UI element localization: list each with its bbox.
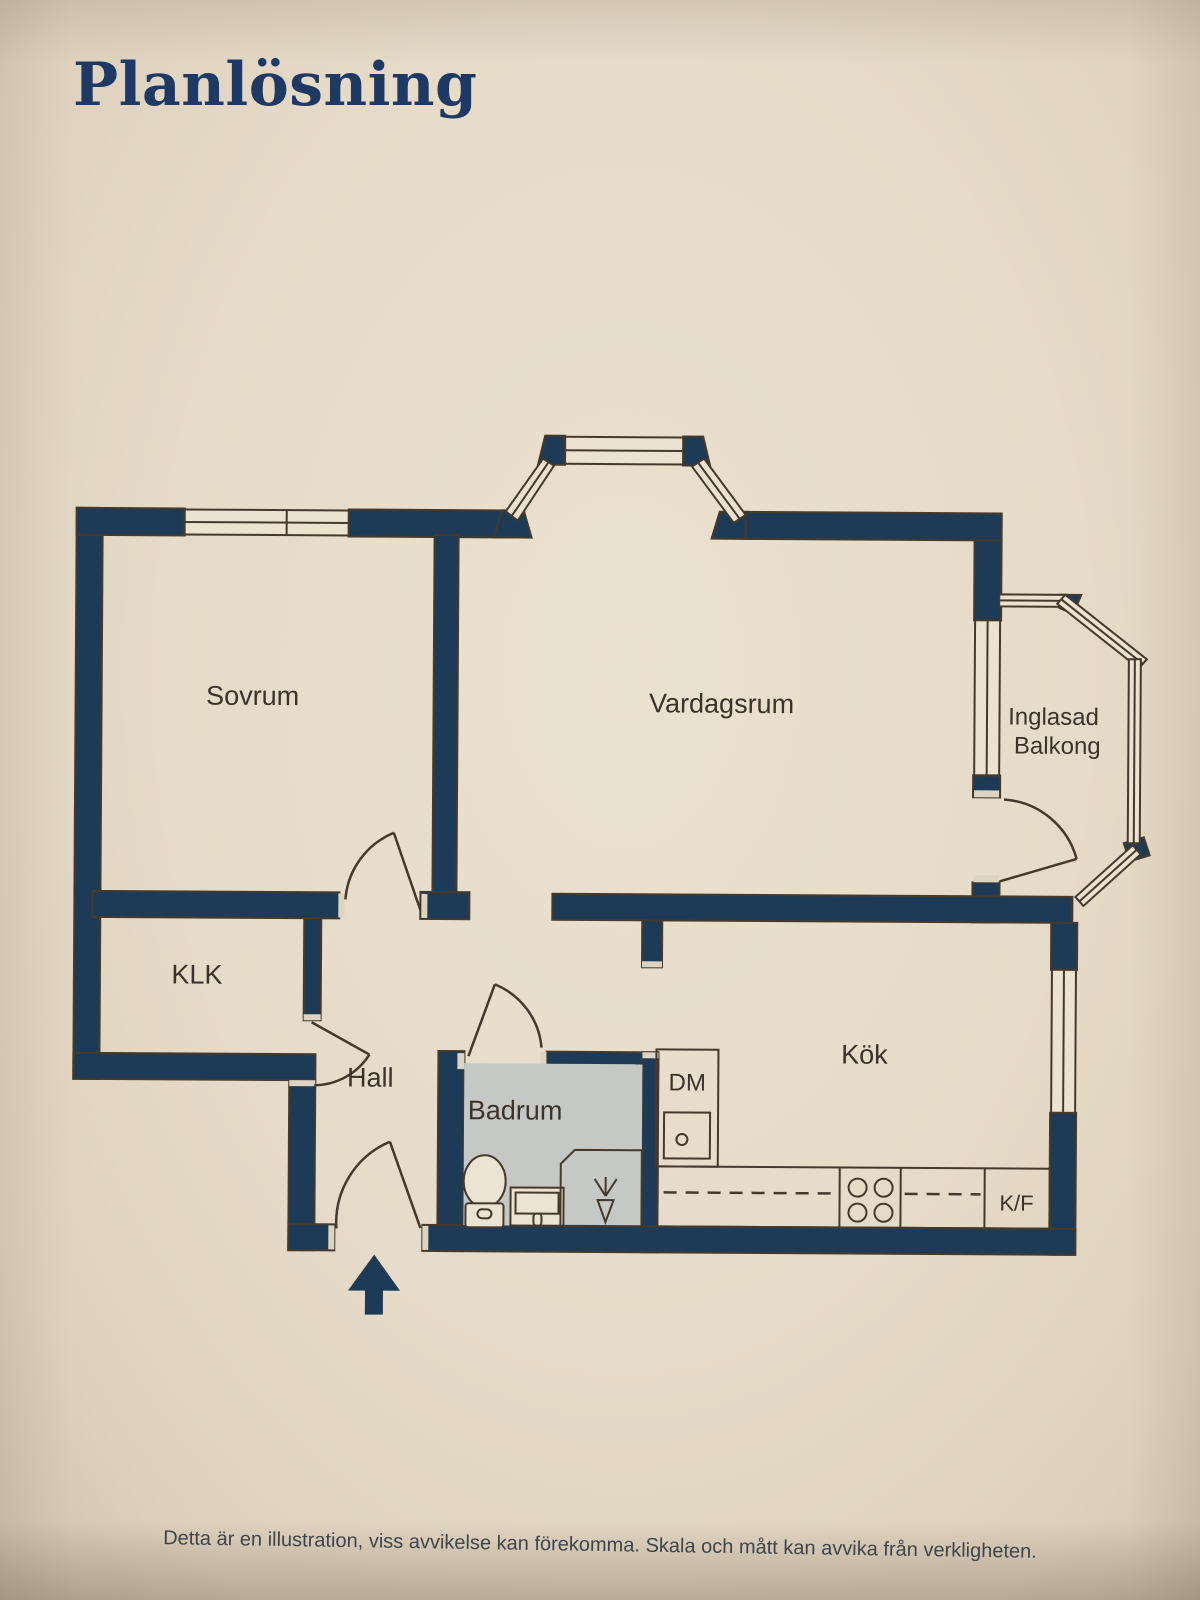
wall-segment bbox=[288, 1224, 334, 1250]
wall-segment bbox=[92, 891, 339, 919]
jamb bbox=[289, 1080, 315, 1086]
label-badrum: Badrum bbox=[468, 1095, 563, 1126]
floorplan-page: Planlösning bbox=[0, 0, 1200, 1600]
label-hall: Hall bbox=[347, 1062, 394, 1092]
wall-segment bbox=[420, 892, 469, 919]
stove-icon bbox=[848, 1179, 892, 1222]
floorplan-drawing: Sovrum Vardagsrum Inglasad Balkong KLK H… bbox=[0, 0, 1200, 1600]
kitchen-fixtures bbox=[655, 1049, 1050, 1228]
label-sovrum: Sovrum bbox=[206, 681, 299, 712]
balcony-glass-bottom-right bbox=[1075, 845, 1140, 906]
jamb bbox=[421, 894, 427, 918]
label-balkong-line1: Inglasad bbox=[1008, 703, 1099, 731]
wall-segment bbox=[437, 1051, 464, 1251]
door-badrum bbox=[468, 984, 541, 1056]
jamb bbox=[457, 1053, 464, 1069]
dishwasher-unit bbox=[656, 1049, 719, 1166]
wall-segment bbox=[974, 540, 1001, 620]
label-klk: KLK bbox=[171, 959, 222, 989]
jamb bbox=[974, 790, 999, 797]
balcony-glass-right bbox=[1128, 659, 1141, 843]
jamb bbox=[642, 961, 662, 967]
door-entrance bbox=[336, 1141, 421, 1229]
wall-segment bbox=[1051, 923, 1077, 970]
label-balkong-line2: Balkong bbox=[1014, 733, 1101, 761]
wall-segment bbox=[552, 894, 1072, 923]
label-dm: DM bbox=[669, 1069, 706, 1096]
balcony-glass-top-right bbox=[1057, 595, 1147, 669]
wall-segment bbox=[349, 509, 514, 537]
wall-segment bbox=[432, 535, 458, 892]
wall-segment bbox=[642, 920, 662, 967]
wall-segment bbox=[422, 1225, 1075, 1255]
wall-segment bbox=[77, 508, 185, 536]
label-vardagsrum: Vardagsrum bbox=[649, 688, 794, 719]
jamb bbox=[328, 1225, 334, 1249]
jamb bbox=[974, 875, 999, 882]
kitchen-counter bbox=[657, 1166, 1049, 1228]
bathroom bbox=[463, 1063, 642, 1228]
wall-segment bbox=[73, 508, 102, 1079]
wall-segment bbox=[746, 512, 1002, 541]
label-kok: Kök bbox=[841, 1039, 888, 1069]
balcony-glass-top bbox=[999, 594, 1067, 606]
wall-segment bbox=[304, 918, 322, 1020]
entrance-arrow-icon bbox=[348, 1254, 400, 1314]
window-vardagsrum bbox=[974, 620, 1000, 775]
window-sovrum bbox=[185, 509, 349, 535]
door-balcony bbox=[1000, 799, 1077, 881]
bay-window-left bbox=[506, 458, 554, 520]
wall-segment bbox=[73, 1053, 315, 1080]
toilet-icon bbox=[463, 1155, 505, 1227]
jamb bbox=[304, 1014, 321, 1020]
window-kok bbox=[1051, 970, 1076, 1113]
sink-icon bbox=[510, 1187, 563, 1225]
door-sovrum bbox=[345, 832, 420, 909]
label-kf: K/F bbox=[999, 1190, 1033, 1215]
jamb bbox=[422, 1226, 428, 1250]
jamb bbox=[338, 893, 344, 917]
bay-window-top bbox=[565, 437, 683, 465]
